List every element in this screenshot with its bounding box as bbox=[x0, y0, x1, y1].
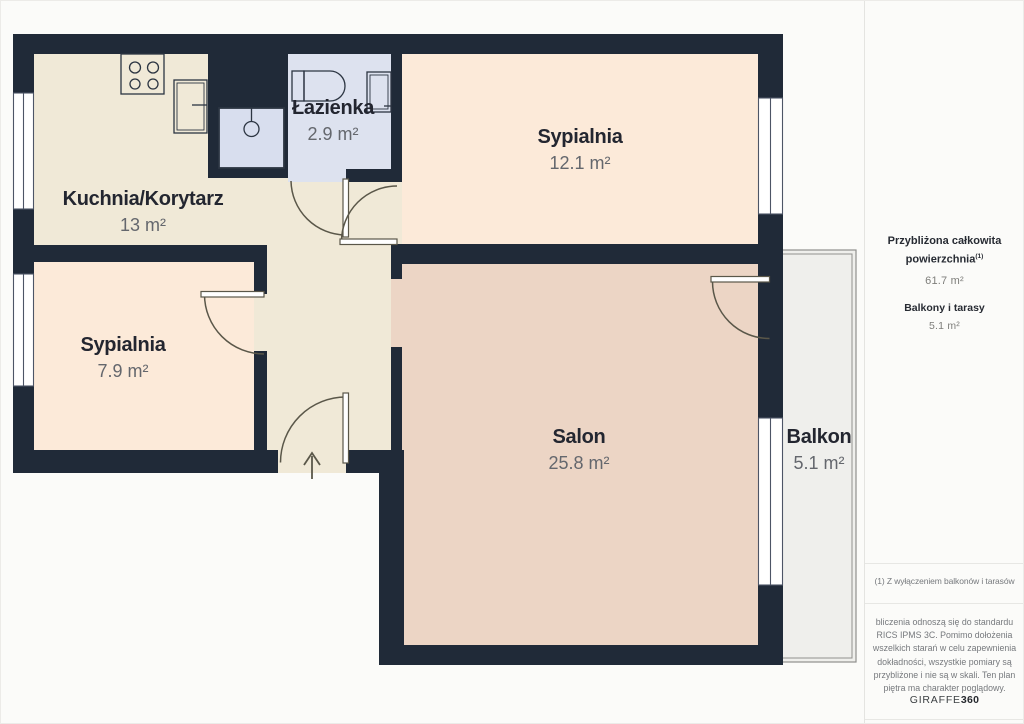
wall-bedroom-salon-divider bbox=[391, 244, 783, 264]
wall-passage-stub-upper bbox=[391, 264, 402, 279]
floor-plan-drawing bbox=[1, 1, 864, 724]
wall-bottom-left bbox=[13, 450, 278, 473]
window-salon-right bbox=[759, 418, 783, 585]
wall-bathroom-right bbox=[391, 54, 402, 182]
sidebar-divider-3 bbox=[865, 719, 1024, 720]
summary-sidebar: Przybliżona całkowita powierzchnia(1) 61… bbox=[864, 1, 1024, 723]
wall-salon-left bbox=[379, 471, 404, 665]
balcony-area-label: Balkony i tarasy bbox=[865, 302, 1024, 314]
giraffe360-logo: GIRAFFE360 bbox=[865, 694, 1024, 706]
sidebar-divider-2 bbox=[865, 603, 1024, 604]
shower-icon bbox=[219, 108, 284, 168]
wall-top bbox=[13, 34, 783, 54]
floor-plan: Kuchnia/Korytarz 13 m² Łazienka 2.9 m² S… bbox=[1, 1, 864, 724]
window-bedroom-small-left bbox=[14, 274, 34, 386]
bedroom-large-floor bbox=[402, 54, 758, 244]
salon-floor bbox=[391, 264, 758, 645]
footnote-text: (1) Z wyłączeniem balkonów i tarasów bbox=[865, 576, 1024, 586]
total-area-value: 61.7 m² bbox=[865, 275, 1024, 287]
sidebar-divider-1 bbox=[865, 563, 1024, 564]
footnote-marker: (1) bbox=[975, 253, 983, 260]
area-summary: Przybliżona całkowita powierzchnia(1) 61… bbox=[865, 233, 1024, 332]
wall-kitchen-bedroom-divider bbox=[13, 245, 267, 262]
wall-salon-bottom bbox=[379, 645, 783, 665]
window-kitchen-left bbox=[14, 93, 34, 209]
wall-passage-stub-lower bbox=[391, 347, 402, 451]
brand-name: GIRAFFE bbox=[910, 694, 961, 706]
bedroom-small-floor bbox=[34, 262, 254, 450]
total-area-label-line1: Przybliżona całkowita bbox=[888, 235, 1002, 247]
total-area-label: Przybliżona całkowita powierzchnia(1) bbox=[865, 233, 1024, 268]
window-bedroom-large-right bbox=[759, 98, 783, 214]
room-floors bbox=[34, 54, 783, 645]
balcony-area-value: 5.1 m² bbox=[865, 320, 1024, 332]
brand-suffix: 360 bbox=[961, 694, 979, 706]
wall-bedroom-small-right-upper bbox=[254, 245, 267, 294]
total-area-label-line2: powierzchnia bbox=[906, 254, 976, 266]
disclaimer-text: bliczenia odnoszą się do standardu RICS … bbox=[870, 616, 1020, 695]
floor-plan-page: Kuchnia/Korytarz 13 m² Łazienka 2.9 m² S… bbox=[0, 0, 1024, 724]
wall-bottom-mid bbox=[346, 450, 404, 473]
wall-bedroom-small-right-lower bbox=[254, 351, 267, 473]
